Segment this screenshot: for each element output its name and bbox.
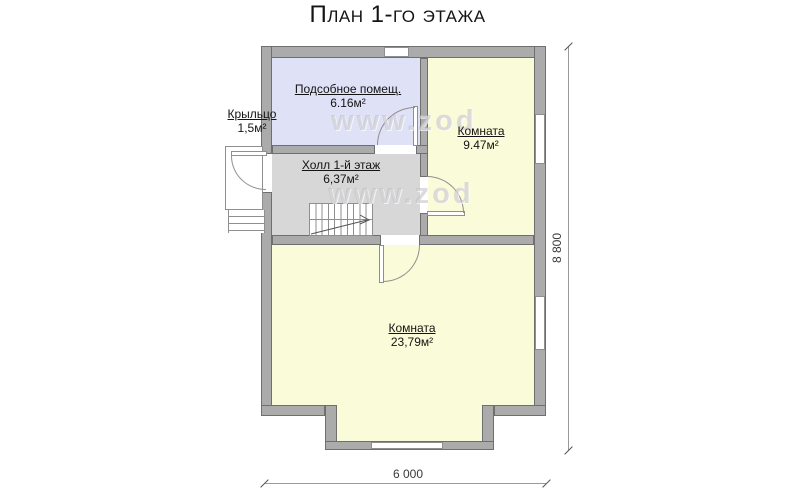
dimension-line-vertical	[568, 46, 569, 450]
window-right-big-room	[535, 296, 545, 350]
wall-bottom-right	[494, 405, 546, 416]
room-label-big-room: Комната 23,79м²	[389, 321, 436, 349]
room-label-hall: Холл 1-й этаж 6,37м²	[302, 158, 380, 186]
dimension-label-depth: 8 800	[550, 218, 566, 278]
wall-mid-left	[272, 235, 381, 245]
room-label-small-room: Комната 9.47м²	[458, 124, 505, 152]
room-name: Подсобное помещ.	[295, 82, 401, 96]
window-top	[384, 47, 409, 57]
dimension-label-width: 6 000	[393, 467, 423, 481]
wall-mid-right	[419, 235, 534, 245]
wall-left-upper	[261, 46, 272, 154]
page-title: План 1-го этажа	[0, 1, 795, 29]
room-label-utility: Подсобное помещ. 6.16м²	[295, 82, 401, 110]
room-area: 6,37м²	[302, 172, 380, 186]
room-area: 6.16м²	[295, 96, 401, 110]
room-area: 23,79м²	[389, 335, 436, 349]
porch-steps	[228, 210, 265, 233]
wall-bottom-left	[261, 405, 325, 416]
wall-utility-hall-right	[416, 145, 428, 154]
floor-bay	[337, 405, 482, 441]
room-area: 9.47м²	[458, 138, 505, 152]
room-name: Холл 1-й этаж	[302, 158, 380, 172]
room-name: Крыльцо	[228, 107, 277, 121]
room-area: 1,5м²	[228, 121, 277, 135]
window-bay	[371, 442, 443, 449]
room-name: Комната	[458, 124, 505, 138]
wall-right	[534, 46, 546, 416]
window-right-small-room	[535, 114, 545, 164]
room-name: Комната	[389, 321, 436, 335]
dimension-line-horizontal	[264, 483, 546, 484]
wall-utility-hall-left	[272, 145, 375, 154]
floor-plan-page: План 1-го этажа www.zod www.zod	[0, 0, 795, 496]
room-label-porch: Крыльцо 1,5м²	[228, 107, 277, 135]
